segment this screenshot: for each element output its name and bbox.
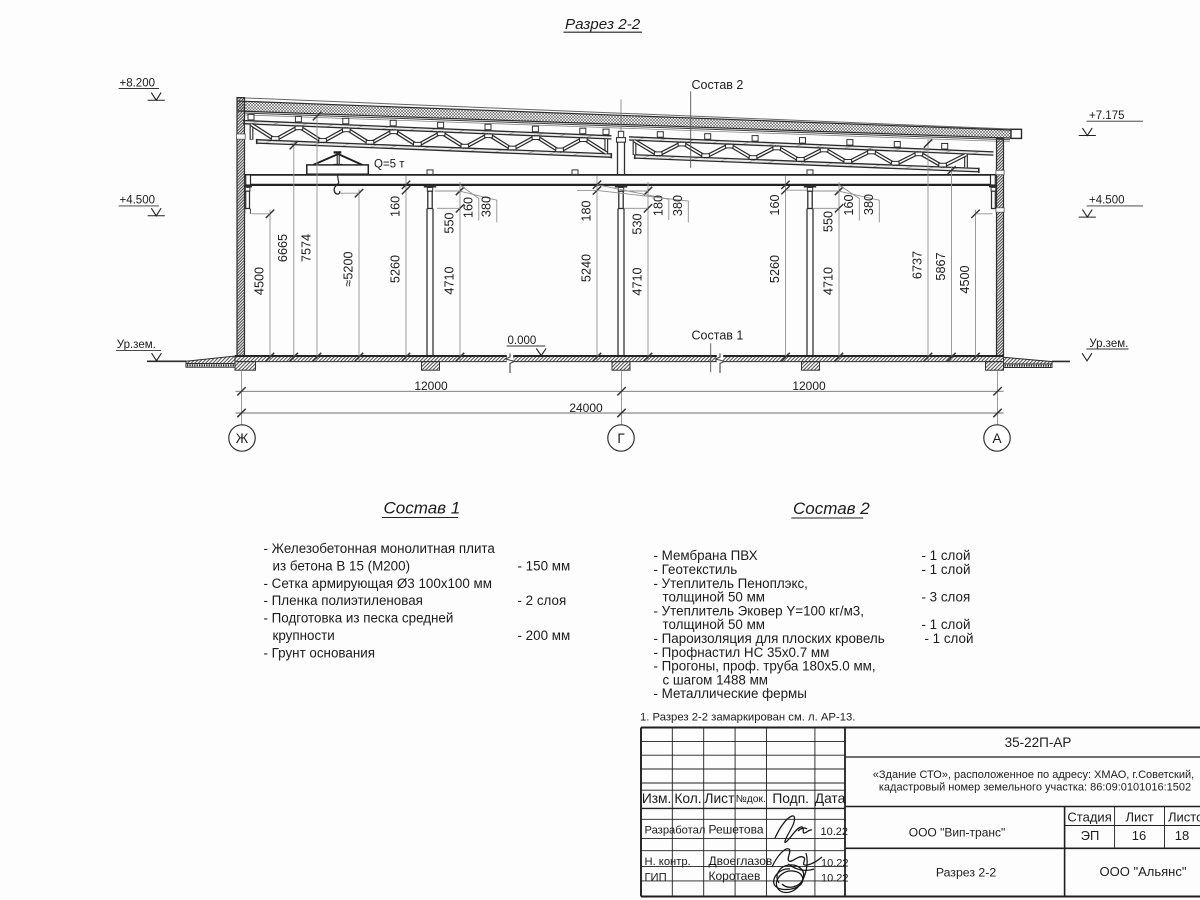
svg-text:Состав 1: Состав 1 — [692, 328, 744, 342]
svg-text:Изм.: Изм. — [642, 791, 672, 806]
svg-text:160: 160 — [768, 194, 782, 215]
svg-text:- Железобетонная монолитная п: - Железобетонная монолитная плита — [264, 541, 496, 556]
svg-text:- 1 слой: - 1 слой — [922, 562, 971, 577]
svg-text:- Пароизоляция для плоских кро: - Пароизоляция для плоских кровель — [654, 631, 885, 646]
svg-text:- Подготовка из песка средней: - Подготовка из песка средней — [264, 611, 454, 626]
svg-text:Решетова: Решетова — [709, 822, 764, 836]
svg-text:ООО "Альянс": ООО "Альянс" — [1100, 864, 1187, 879]
svg-text:35-22П-АР: 35-22П-АР — [1005, 735, 1072, 750]
svg-text:- 3 слоя: - 3 слоя — [922, 590, 971, 605]
svg-text:180: 180 — [579, 200, 593, 221]
svg-text:- Утеплитель Эковер Y=100 кг/м: - Утеплитель Эковер Y=100 кг/м3, — [654, 603, 864, 618]
svg-text:- 150 мм: - 150 мм — [518, 558, 571, 573]
svg-text:Лист: Лист — [1125, 810, 1153, 825]
svg-text:Дата: Дата — [815, 791, 846, 806]
svg-text:5260: 5260 — [768, 255, 782, 283]
svg-text:Состав 1: Состав 1 — [384, 499, 461, 518]
svg-text:Разработал: Разработал — [645, 825, 706, 837]
svg-text:6665: 6665 — [276, 234, 290, 262]
svg-text:Кол.: Кол. — [674, 791, 701, 806]
svg-text:18: 18 — [1175, 828, 1189, 843]
svg-text:5260: 5260 — [388, 255, 402, 283]
svg-text:Н. контр.: Н. контр. — [645, 856, 691, 868]
svg-text:4710: 4710 — [821, 267, 835, 295]
svg-text:+7.175: +7.175 — [1089, 110, 1125, 122]
svg-text:- Утеплитель Пеноплэкс,: - Утеплитель Пеноплэкс, — [654, 576, 808, 591]
svg-text:4500: 4500 — [252, 267, 266, 295]
svg-text:12000: 12000 — [414, 379, 448, 393]
svg-text:- Пленка полиэтиленовая: - Пленка полиэтиленовая — [264, 593, 423, 608]
svg-text:10.22: 10.22 — [821, 872, 849, 884]
svg-text:Разрез 2-2: Разрез 2-2 — [936, 866, 997, 880]
svg-text:160: 160 — [842, 194, 856, 215]
svg-text:380: 380 — [479, 196, 493, 217]
svg-text:ЭП: ЭП — [1081, 828, 1100, 843]
svg-text:380: 380 — [862, 194, 876, 215]
svg-text:А: А — [992, 431, 1001, 446]
svg-text:4710: 4710 — [442, 266, 456, 294]
svg-text:0.000: 0.000 — [508, 335, 537, 347]
svg-text:380: 380 — [671, 195, 685, 216]
svg-text:7574: 7574 — [299, 234, 313, 262]
svg-text:4500: 4500 — [958, 265, 972, 293]
svg-text:ООО "Вип-транс": ООО "Вип-транс" — [909, 826, 1006, 840]
svg-text:+8.200: +8.200 — [120, 77, 156, 89]
svg-text:кадастровый номер земельного у: кадастровый номер земельного участка: 86… — [879, 782, 1191, 794]
svg-text:5240: 5240 — [579, 254, 593, 282]
svg-text:Листов: Листов — [1168, 810, 1200, 825]
svg-text:- Грунт основания: - Грунт основания — [264, 645, 375, 660]
svg-text:530: 530 — [630, 213, 644, 234]
svg-text:16: 16 — [1132, 828, 1146, 843]
svg-text:толщиной 50 мм: толщиной 50 мм — [663, 590, 766, 605]
svg-text:Стадия: Стадия — [1067, 810, 1111, 825]
svg-text:Г: Г — [617, 431, 625, 446]
svg-text:≈5200: ≈5200 — [341, 251, 355, 286]
svg-text:24000: 24000 — [569, 401, 603, 415]
svg-text:Q=5 т: Q=5 т — [374, 158, 405, 170]
svg-text:1. Разрез 2-2 замаркирован см.: 1. Разрез 2-2 замаркирован см. л. АР-13. — [640, 712, 855, 724]
svg-text:«Здание СТО», расположенное по: «Здание СТО», расположенное по адресу: Х… — [873, 769, 1194, 781]
svg-text:Ур.зем.: Ур.зем. — [1089, 338, 1128, 350]
svg-text:Ур.зем.: Ур.зем. — [117, 339, 156, 351]
svg-text:- Прогоны, проф. труба 180х5.0: - Прогоны, проф. труба 180х5.0 мм, — [654, 659, 876, 674]
svg-text:Коротаев: Коротаев — [709, 869, 761, 883]
svg-text:- 2 слоя: - 2 слоя — [518, 593, 567, 608]
svg-text:ГИП: ГИП — [645, 872, 667, 884]
svg-text:- 1 слой: - 1 слой — [925, 631, 974, 646]
svg-text:из бетона В 15 (М200): из бетона В 15 (М200) — [273, 558, 411, 573]
svg-text:+4.500: +4.500 — [1089, 195, 1125, 207]
svg-text:Разрез 2-2: Разрез 2-2 — [565, 16, 641, 33]
svg-text:5867: 5867 — [934, 252, 948, 280]
svg-text:6737: 6737 — [910, 251, 924, 279]
svg-text:Состав 2: Состав 2 — [793, 499, 870, 518]
svg-text:- 200 мм: - 200 мм — [518, 628, 571, 643]
svg-text:Подп.: Подп. — [772, 791, 809, 806]
svg-text:10.22: 10.22 — [821, 826, 849, 838]
svg-text:12000: 12000 — [792, 379, 826, 393]
svg-text:- Профнастил НС 35х0.7 мм: - Профнастил НС 35х0.7 мм — [654, 645, 830, 660]
svg-text:крупности: крупности — [273, 628, 335, 643]
svg-text:- Геотекстиль: - Геотекстиль — [654, 562, 738, 577]
svg-text:- 1 слой: - 1 слой — [922, 548, 971, 563]
svg-text:- Мембрана ПВХ: - Мембрана ПВХ — [654, 548, 758, 563]
svg-text:550: 550 — [442, 212, 456, 233]
svg-text:550: 550 — [821, 211, 835, 232]
svg-text:Двоеглазов: Двоеглазов — [709, 854, 773, 868]
svg-text:Состав 2: Состав 2 — [692, 78, 744, 92]
svg-text:- Металлические фермы: - Металлические фермы — [654, 686, 807, 701]
svg-text:+4.500: +4.500 — [120, 195, 156, 207]
svg-text:160: 160 — [388, 196, 402, 217]
svg-text:Лист: Лист — [704, 791, 735, 806]
svg-text:с шагом 1488 мм: с шагом 1488 мм — [663, 672, 769, 687]
svg-text:160: 160 — [461, 197, 475, 218]
svg-text:4710: 4710 — [630, 267, 644, 295]
svg-text:10.22: 10.22 — [821, 857, 849, 869]
svg-text:№док.: №док. — [736, 794, 766, 805]
svg-text:- Сетка армирующая Ø3 100х100: - Сетка армирующая Ø3 100х100 мм — [264, 576, 492, 591]
svg-text:- 1 слой: - 1 слой — [922, 617, 971, 632]
svg-text:Ж: Ж — [236, 431, 249, 446]
svg-text:толщиной 50 мм: толщиной 50 мм — [663, 617, 766, 632]
